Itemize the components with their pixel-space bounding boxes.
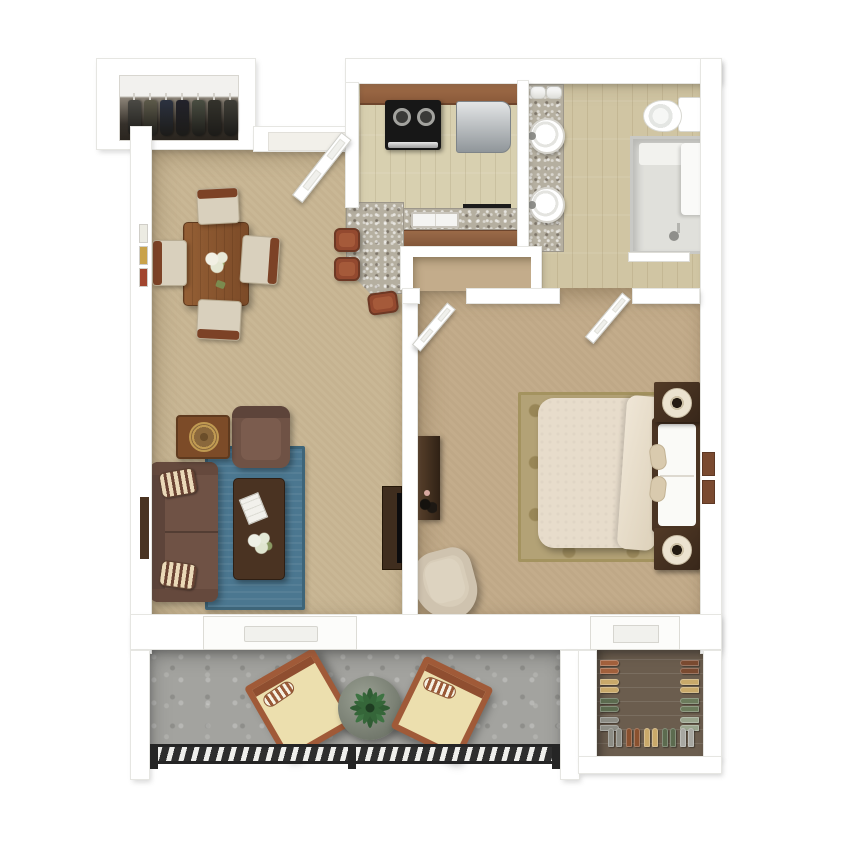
dining-chair-left xyxy=(152,240,187,286)
bedroom-window-panel xyxy=(613,625,659,643)
chair-back xyxy=(153,241,162,285)
shoe-closet-left-wall xyxy=(578,650,597,760)
armchair-back xyxy=(232,406,290,418)
dining-table xyxy=(183,222,249,306)
shoe xyxy=(680,717,699,723)
oven-handle xyxy=(388,142,438,148)
stove-burner-left xyxy=(393,108,411,126)
faucet-top xyxy=(528,132,536,140)
shoe xyxy=(600,660,619,666)
railing-post-left xyxy=(150,745,158,769)
lamp-top xyxy=(662,388,692,418)
shoe xyxy=(680,668,699,674)
bedroom-top-wall-c xyxy=(632,288,700,304)
potted-plant-icon xyxy=(346,684,394,732)
shoe xyxy=(600,687,619,693)
shoe xyxy=(600,698,619,704)
dining-centerpiece xyxy=(200,247,234,277)
bedroom-window xyxy=(590,616,680,650)
shoe-closet-bottom-wall xyxy=(578,756,722,774)
window-shutter-top xyxy=(702,452,715,476)
hanging-coat xyxy=(192,100,205,136)
right-wall xyxy=(700,58,722,654)
shoe-pair xyxy=(680,728,694,747)
shoe xyxy=(662,728,668,747)
shoe xyxy=(600,706,619,712)
left-wall xyxy=(130,126,152,654)
bedroom-top-wall-b xyxy=(466,288,560,304)
refrigerator xyxy=(456,101,511,153)
shower-bench-top xyxy=(639,143,685,165)
wall-frame-3 xyxy=(139,268,148,287)
bar-stool-2 xyxy=(334,257,360,281)
bed-duvet xyxy=(538,398,658,548)
towels xyxy=(529,85,562,99)
shoe-pair xyxy=(662,728,676,747)
sliding-glass-door-panel xyxy=(244,626,318,642)
closet-nook-floor xyxy=(413,257,531,291)
floor-plan xyxy=(0,0,844,844)
patio-table xyxy=(338,676,402,740)
stove xyxy=(385,100,441,150)
bedroom-top-wall-a xyxy=(402,288,420,304)
railing-post-right xyxy=(552,745,560,769)
armchair xyxy=(232,406,290,468)
wall-frame-2 xyxy=(139,246,148,265)
shoe xyxy=(680,728,686,747)
dresser-knob xyxy=(424,490,430,496)
vanity-counter xyxy=(527,84,564,252)
kitchen-bath-wall xyxy=(517,80,529,254)
bar-stool-3 xyxy=(367,290,400,316)
shower-curb xyxy=(628,252,690,262)
shower xyxy=(630,136,710,254)
hanging-coat xyxy=(160,100,173,136)
hanging-coat xyxy=(208,100,221,136)
hanging-coat xyxy=(176,100,189,136)
shoe xyxy=(600,717,619,723)
sofa xyxy=(150,462,218,602)
dining-chair-bottom xyxy=(196,299,242,341)
shoe-pair xyxy=(600,679,619,693)
sofa-seat-split xyxy=(165,531,218,533)
dresser-items xyxy=(420,498,437,514)
closet-nook-wall xyxy=(400,246,542,290)
bar-stool-1 xyxy=(334,228,360,252)
shoe-pair xyxy=(626,728,640,747)
sofa-pillow-top xyxy=(158,467,198,499)
shoe xyxy=(680,679,699,685)
sliding-glass-door xyxy=(203,616,357,650)
chair-back xyxy=(197,188,237,199)
bed-headboard xyxy=(652,418,702,532)
armchair-seat xyxy=(241,418,281,460)
stove-burner-right xyxy=(417,108,435,126)
shoe xyxy=(626,728,632,747)
shoe-pair xyxy=(680,679,699,693)
shoe-pair xyxy=(680,660,699,674)
shoe xyxy=(680,660,699,666)
shoe xyxy=(680,687,699,693)
napkin xyxy=(215,280,226,290)
sofa-pillow-bottom xyxy=(158,560,197,591)
shoe xyxy=(688,728,694,747)
balcony-left-wall xyxy=(130,650,150,780)
shoe-pair xyxy=(600,698,619,712)
coffee-table xyxy=(233,478,285,580)
shoe xyxy=(680,698,699,704)
shoe xyxy=(652,728,658,747)
table-flowers xyxy=(246,531,274,555)
shoe-pair xyxy=(600,660,619,674)
shoe-pair xyxy=(644,728,658,747)
chair-back xyxy=(197,329,239,340)
end-table xyxy=(176,415,230,459)
shoe-column-right xyxy=(680,660,699,731)
top-wall xyxy=(345,58,722,84)
wall-frame-1 xyxy=(139,224,148,243)
shoe xyxy=(600,668,619,674)
sink-counter xyxy=(403,208,520,230)
bed-pillow-area xyxy=(658,424,696,526)
toilet-bowl xyxy=(643,100,682,132)
shoe xyxy=(616,728,622,747)
dining-chair-top xyxy=(196,187,240,225)
book xyxy=(239,492,269,525)
chair-back xyxy=(267,238,279,285)
balcony-railing xyxy=(150,744,560,764)
entry-closet-wall-block xyxy=(96,58,256,150)
railing-post-center xyxy=(348,745,356,769)
tv-console xyxy=(382,486,402,570)
round-tray xyxy=(189,422,219,452)
shoe xyxy=(634,728,640,747)
utensil-rail xyxy=(463,204,511,208)
balcony-right-wall xyxy=(560,650,580,780)
sofa-armrest-bottom xyxy=(150,589,218,602)
shoe xyxy=(680,706,699,712)
shoe-row-bottom xyxy=(608,728,694,747)
hanging-coat xyxy=(224,100,237,136)
shoe xyxy=(644,728,650,747)
wall-art-strip xyxy=(140,497,149,559)
kitchen-sink xyxy=(411,212,459,228)
shoe xyxy=(600,679,619,685)
bedroom-chair-cushion xyxy=(422,556,468,606)
shoe-pair xyxy=(680,698,699,712)
shoe-closet-right-wall xyxy=(703,650,722,760)
shoe-pair xyxy=(608,728,622,747)
lamp-bottom xyxy=(662,535,692,565)
faucet-bottom xyxy=(528,201,536,209)
dresser xyxy=(418,436,440,520)
shower-head xyxy=(669,231,679,241)
shoe xyxy=(670,728,676,747)
shoe xyxy=(608,728,614,747)
window-shutter-bottom xyxy=(702,480,715,504)
dining-chair-right xyxy=(239,235,280,286)
shoe-column-left xyxy=(600,660,619,731)
